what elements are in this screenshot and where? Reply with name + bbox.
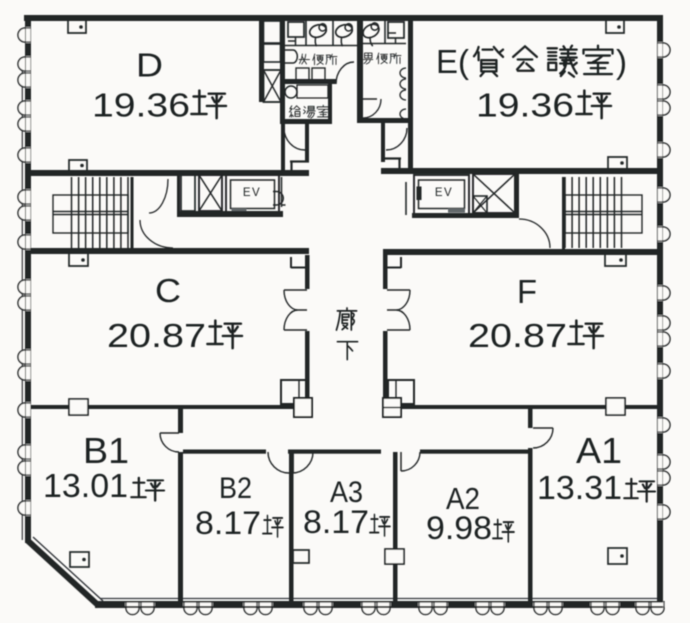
svg-text:13.31: 13.31	[537, 469, 622, 506]
svg-text:20.87: 20.87	[107, 317, 206, 354]
svg-text:A1: A1	[576, 430, 622, 471]
svg-text:19.36: 19.36	[476, 87, 574, 124]
svg-text:9.98: 9.98	[426, 510, 492, 546]
svg-text:8.17: 8.17	[195, 505, 261, 541]
svg-text:20.87: 20.87	[468, 317, 567, 354]
svg-text:13.01: 13.01	[43, 467, 128, 504]
svg-text:D: D	[136, 47, 163, 84]
svg-text:8.17: 8.17	[303, 504, 369, 540]
svg-text:B1: B1	[83, 430, 129, 471]
svg-text:B2: B2	[219, 472, 252, 505]
svg-text:19.36: 19.36	[92, 87, 190, 124]
svg-text:EV: EV	[243, 187, 261, 199]
svg-text:E(: E(	[436, 43, 469, 80]
svg-text:EV: EV	[435, 187, 453, 199]
svg-text:C: C	[155, 272, 181, 309]
svg-text:F: F	[517, 273, 537, 310]
svg-text:): )	[616, 43, 627, 80]
